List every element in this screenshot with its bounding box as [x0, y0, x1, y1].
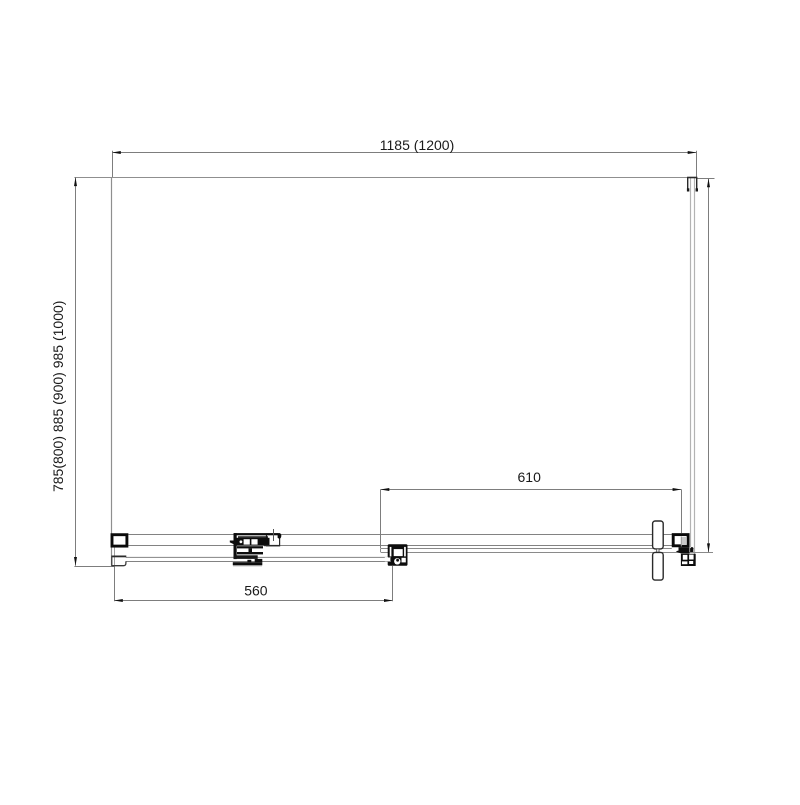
svg-text:560: 560 — [244, 582, 268, 598]
svg-text:1185 (1200): 1185 (1200) — [380, 137, 454, 153]
svg-text:610: 610 — [518, 469, 542, 485]
svg-text:785(800) 885 (900) 985 (1000): 785(800) 885 (900) 985 (1000) — [50, 301, 66, 492]
